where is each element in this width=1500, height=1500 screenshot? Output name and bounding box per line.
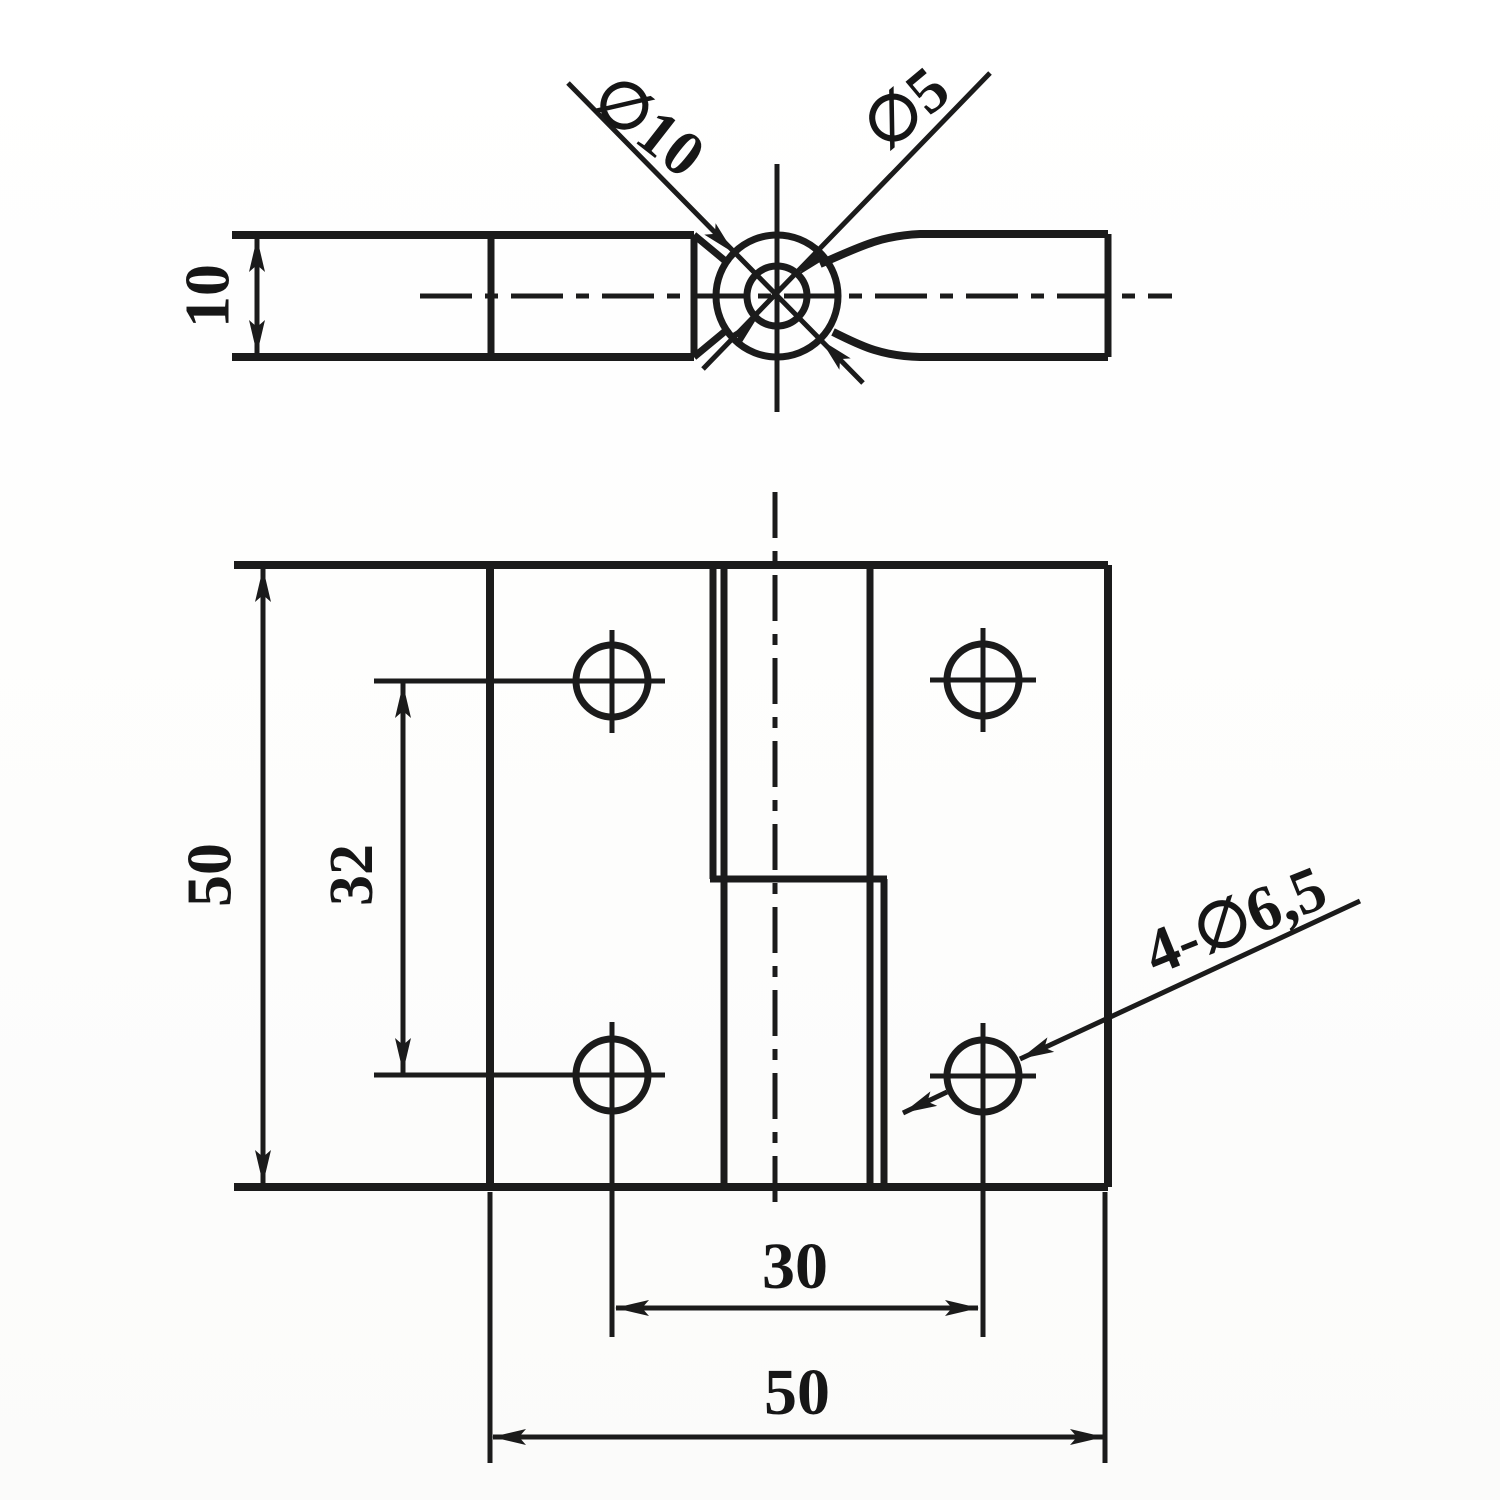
side-top-edge-right	[820, 234, 1108, 264]
plate-height-label: 50	[174, 843, 245, 907]
screw-holes	[374, 628, 1036, 1337]
knuckle-diameter-label: ∅10	[580, 61, 718, 191]
dim-hole-spacing-vertical: 32	[318, 683, 411, 1073]
pin-diameter-label: ∅5	[850, 53, 963, 164]
side-view: 10 ∅10 ∅5	[172, 53, 1173, 412]
front-view: 50 32 30 50	[174, 492, 1361, 1463]
hole-callout-label: 4-∅6,5	[1134, 852, 1336, 989]
callout-arrow-at-hole	[1017, 1037, 1055, 1066]
dim-plate-height: 50	[174, 567, 272, 1185]
callout-tail-arrow	[900, 1091, 938, 1120]
dim-thickness: 10	[172, 237, 266, 355]
hole-spacing-vertical-label: 32	[318, 844, 386, 906]
hole-callout: 4-∅6,5	[900, 852, 1360, 1121]
side-bottom-edge-right	[833, 332, 1108, 357]
plate-width-label: 50	[764, 1356, 830, 1429]
thickness-label: 10	[172, 264, 243, 328]
hole-spacing-horizontal-label: 30	[762, 1230, 828, 1303]
center-slot	[710, 565, 887, 1187]
hinge-technical-drawing: 10 ∅10 ∅5	[0, 0, 1500, 1500]
drawing-sheet: 10 ∅10 ∅5	[0, 0, 1500, 1500]
dim-hole-spacing-horizontal: 30	[615, 1230, 979, 1316]
